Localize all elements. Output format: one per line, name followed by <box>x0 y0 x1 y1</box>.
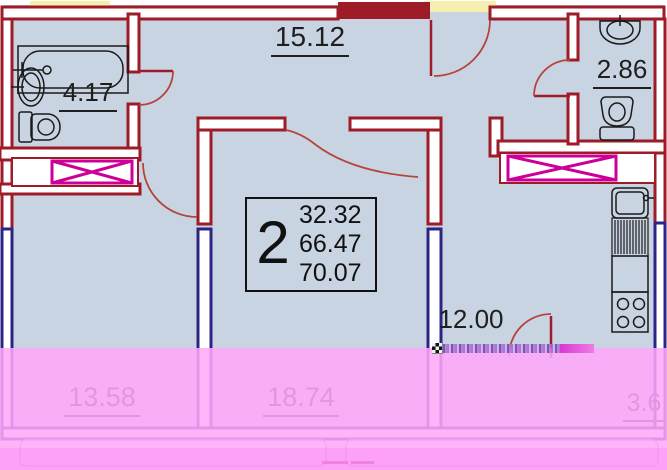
glitch-pixel-band <box>443 344 568 353</box>
living-right-wall <box>428 118 441 224</box>
floor-plan: 15.12 4.17 2.86 12.00 13.58 18.74 3.6 2 … <box>0 0 667 470</box>
kitchen-area-label: 12.00 <box>434 306 508 333</box>
living-left-wall <box>198 118 211 224</box>
underline-artifact <box>351 461 374 464</box>
bathroom-area-label: 4.17 <box>48 79 128 112</box>
bathroom-wall-lower <box>128 104 139 152</box>
bathroom-wall-upper <box>128 14 139 72</box>
pink-selection-band <box>0 448 667 470</box>
left-wall <box>2 19 12 229</box>
hallway-area-label: 15.12 <box>240 22 380 57</box>
area-figures: 32.32 66.47 70.07 <box>299 199 375 290</box>
underline-artifact <box>322 461 348 464</box>
living-area-value: 32.32 <box>299 202 371 228</box>
top-wall-left <box>2 7 338 19</box>
wc-bottom-wall <box>498 141 665 153</box>
right-closet <box>500 153 655 183</box>
checker-artifact-icon <box>432 343 443 354</box>
living-top-wall-right <box>350 118 441 130</box>
kitchen-drainboard-icon <box>612 218 648 256</box>
wc-area-label: 2.86 <box>586 56 658 89</box>
apartment-info-box: 2 32.32 66.47 70.07 <box>245 197 377 292</box>
total-with-balcony-value: 70.07 <box>299 260 371 286</box>
room-count: 2 <box>247 199 299 290</box>
living-top-wall-left <box>198 118 285 130</box>
wc-wall-upper <box>568 14 578 60</box>
left-closet <box>12 158 138 186</box>
total-area-value: 66.47 <box>299 231 371 257</box>
top-wall-solid-segment <box>338 2 430 19</box>
wc-wall-lower <box>568 94 578 144</box>
glitch-magenta-blob <box>560 344 594 353</box>
right-wall <box>655 19 665 223</box>
